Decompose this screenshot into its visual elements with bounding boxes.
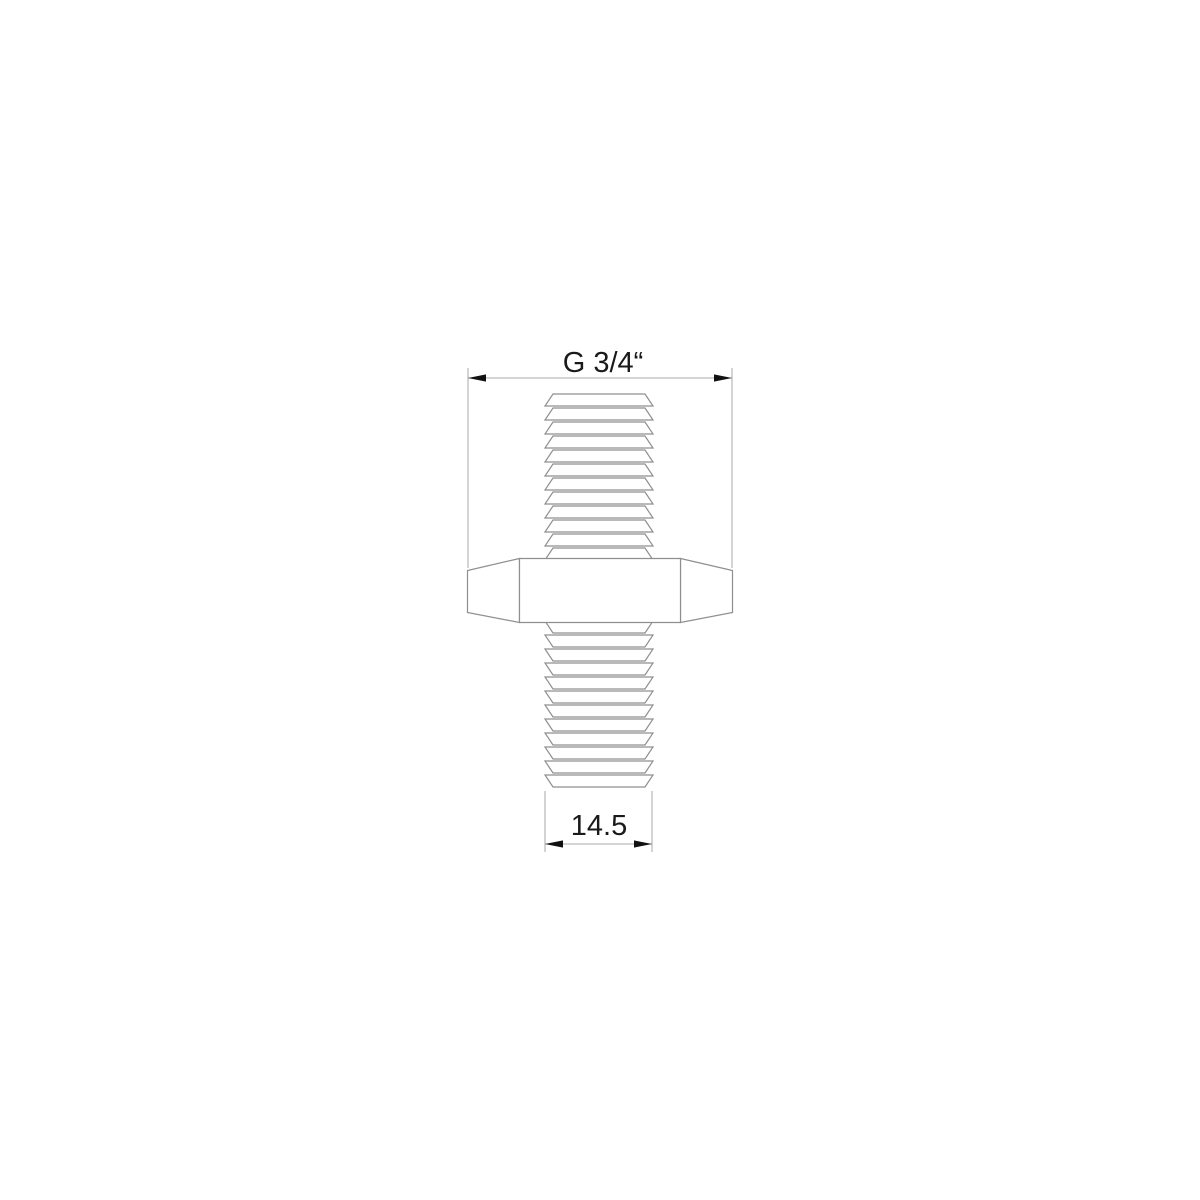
thread-band — [545, 478, 653, 490]
thread-band — [545, 775, 653, 787]
thread-band — [545, 761, 653, 773]
thread-band — [545, 663, 653, 675]
thread-band — [545, 436, 653, 448]
dimension-arrowhead-left — [545, 840, 563, 847]
dimension-label-thread-size: G 3/4“ — [563, 347, 644, 379]
dimension-arrowhead-left — [468, 374, 486, 381]
thread-band — [545, 719, 653, 731]
thread-band — [545, 733, 653, 745]
thread-band — [545, 534, 653, 546]
thread-band — [545, 649, 653, 661]
hex-body-right-chamfer — [681, 559, 733, 623]
thread-band — [545, 747, 653, 759]
dimension-arrowhead-right — [714, 374, 732, 381]
thread-band — [545, 422, 653, 434]
hex-body-centre-face — [520, 559, 681, 623]
thread-band — [545, 408, 653, 420]
dimension-label-thread-width: 14.5 — [571, 810, 627, 842]
thread-band — [545, 394, 653, 406]
technical-drawing-canvas: G 3/4“ 14.5 — [0, 0, 1200, 1200]
thread-band — [545, 677, 653, 689]
dimension-arrowhead-right — [634, 840, 652, 847]
thread-band — [545, 506, 653, 518]
threaded-nipple-drawing: G 3/4“ 14.5 — [0, 0, 1200, 1200]
thread-band — [545, 464, 653, 476]
thread-band — [545, 635, 653, 647]
thread-band — [545, 691, 653, 703]
hex-body — [468, 559, 733, 623]
hex-body-left-chamfer — [468, 559, 520, 623]
thread-band — [545, 492, 653, 504]
thread-band — [545, 520, 653, 532]
thread-band — [545, 450, 653, 462]
thread-band — [545, 705, 653, 717]
